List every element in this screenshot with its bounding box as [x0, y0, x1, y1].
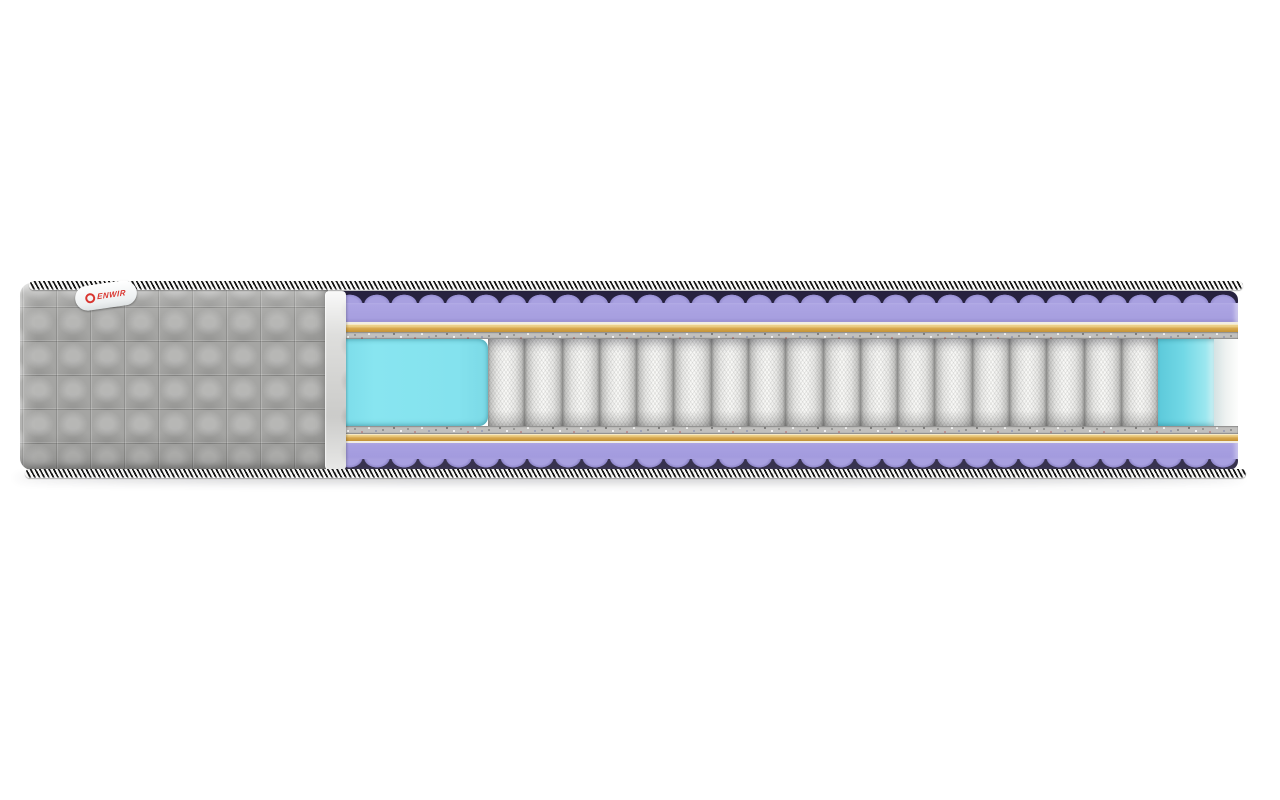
pocket-spring	[786, 339, 822, 426]
brand-name: ENWIR	[97, 288, 126, 301]
pocket-spring	[563, 339, 599, 426]
pocket-spring	[898, 339, 934, 426]
pocket-spring	[749, 339, 785, 426]
side-foam-right	[1158, 339, 1214, 426]
pocket-spring	[1047, 339, 1083, 426]
pocket-spring	[935, 339, 971, 426]
brand-logo-icon	[85, 292, 96, 303]
orange-layer-top	[336, 324, 1238, 332]
pocket-spring	[1085, 339, 1121, 426]
purple-foam-body-bottom	[336, 443, 1238, 459]
pocket-spring	[1122, 339, 1158, 426]
pocket-spring	[525, 339, 561, 426]
pocket-springs-row	[488, 339, 1158, 426]
pocket-spring	[824, 339, 860, 426]
piping-cord-bottom	[25, 469, 1246, 478]
wavy-foam-layer-top	[336, 291, 1238, 303]
cover-cut-edge	[325, 291, 346, 470]
pocket-spring	[674, 339, 710, 426]
pocket-spring	[861, 339, 897, 426]
pocket-spring	[488, 339, 524, 426]
pocket-spring	[712, 339, 748, 426]
side-foam-left	[336, 339, 488, 426]
pocket-spring	[1010, 339, 1046, 426]
piping-cord-top	[29, 281, 1243, 290]
quilted-cover-panel	[20, 283, 328, 470]
pocket-spring	[637, 339, 673, 426]
felt-pad-top	[336, 332, 1238, 339]
pocket-spring	[600, 339, 636, 426]
pocket-spring	[973, 339, 1009, 426]
cover-end-cap	[1214, 339, 1238, 426]
cutaway-section	[336, 291, 1238, 470]
felt-pad-bottom	[336, 426, 1238, 434]
spring-core-row	[336, 339, 1238, 426]
mattress-scene: ENWIR	[0, 0, 1280, 800]
purple-foam-body-top	[336, 303, 1238, 322]
orange-layer-bottom	[336, 434, 1238, 441]
